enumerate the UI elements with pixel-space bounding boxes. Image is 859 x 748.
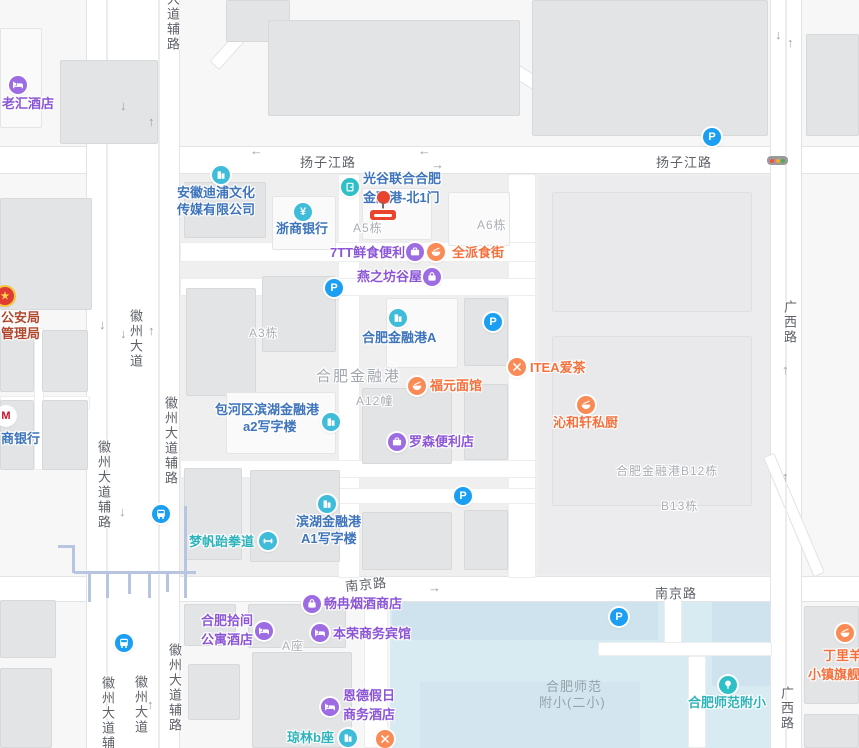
building bbox=[186, 288, 256, 396]
map-canvas[interactable]: 扬子江路 扬子江路 南京路 南京路 大道辅路 徽州大道 徽州大道辅路 徽州大道辅… bbox=[0, 0, 859, 748]
district-label-jinrong-gang: 合肥金融港 bbox=[316, 365, 401, 386]
star-glyph: ★ bbox=[1, 291, 10, 302]
office-building-icon[interactable] bbox=[318, 495, 336, 513]
restaurant-bowl-icon[interactable] bbox=[836, 624, 854, 642]
transit-line bbox=[106, 574, 109, 598]
m-glyph: M bbox=[1, 410, 10, 422]
arrow-up-icon: ↑ bbox=[148, 324, 155, 337]
poi-label-zheshang-bank[interactable]: 浙商银行 bbox=[276, 222, 328, 237]
restaurant-utensils-icon[interactable] bbox=[508, 358, 526, 376]
arrow-up-icon: ↑ bbox=[782, 470, 789, 483]
poi-label-dingliyang-line2[interactable]: 小镇旗舰 bbox=[808, 668, 859, 683]
poi-label-dingliyang-line1[interactable]: 丁里羊 bbox=[823, 649, 859, 664]
lane-divider bbox=[158, 0, 160, 748]
building-label-a12: A12幢 bbox=[356, 392, 393, 409]
poi-label-police-line1[interactable]: 公安局 bbox=[1, 311, 40, 326]
school-path bbox=[598, 642, 772, 656]
building bbox=[60, 60, 158, 144]
hotel-icon[interactable] bbox=[311, 624, 329, 642]
transit-line bbox=[72, 545, 75, 573]
building bbox=[804, 714, 859, 748]
transit-line bbox=[58, 545, 74, 548]
building bbox=[464, 510, 508, 570]
p-glyph: P bbox=[708, 131, 715, 143]
poi-label-ende-line2[interactable]: 商务酒店 bbox=[343, 708, 395, 723]
road-label-nanjing: 南京路 bbox=[655, 583, 697, 602]
arrow-left-icon: ← bbox=[418, 144, 431, 157]
transit-line bbox=[128, 574, 131, 594]
building bbox=[362, 512, 452, 570]
building bbox=[806, 34, 859, 136]
poi-label-guanggu-gate-line2[interactable]: 金融港-北1门 bbox=[363, 191, 440, 206]
road-label-huizhou: 徽州大道 bbox=[131, 675, 150, 735]
office-building-icon[interactable] bbox=[389, 309, 407, 327]
yuan-glyph: ¥ bbox=[300, 206, 306, 218]
building bbox=[0, 668, 52, 748]
shop-bag-icon[interactable] bbox=[423, 268, 441, 286]
arrow-right-icon: → bbox=[428, 581, 441, 594]
p-glyph: P bbox=[489, 316, 496, 328]
building-label-b13: B13栋 bbox=[661, 497, 698, 514]
food-street-icon[interactable] bbox=[427, 243, 445, 261]
building-label-a3: A3栋 bbox=[249, 324, 279, 341]
road-label-guangxi: 广西路 bbox=[780, 300, 799, 345]
bus-stop-icon[interactable] bbox=[152, 505, 170, 523]
poi-label-police-line2[interactable]: 管理局 bbox=[1, 327, 40, 342]
private-kitchen-icon[interactable] bbox=[577, 396, 595, 414]
noodle-restaurant-icon[interactable] bbox=[408, 377, 426, 395]
office-building-icon[interactable] bbox=[339, 729, 357, 747]
transit-line bbox=[166, 574, 169, 592]
poi-label-yanzhifang[interactable]: 燕之坊谷屋 bbox=[357, 270, 422, 285]
poi-label-hefeishijian-line1[interactable]: 合肥拾间 bbox=[201, 614, 253, 629]
arrow-down-icon: ↓ bbox=[120, 99, 127, 112]
building bbox=[42, 330, 88, 392]
poi-label-benrong[interactable]: 本荣商务宾馆 bbox=[333, 627, 411, 642]
arrow-down-icon: ↓ bbox=[99, 318, 106, 331]
poi-label-lawson[interactable]: 罗森便利店 bbox=[409, 435, 474, 450]
building bbox=[268, 20, 520, 116]
poi-label-jinronggang-a[interactable]: 合肥金融港A bbox=[362, 331, 436, 346]
poi-label-baohequ-line2[interactable]: a2写字楼 bbox=[243, 420, 296, 435]
poi-label-binhu-a1-line2[interactable]: A1写字楼 bbox=[301, 532, 357, 547]
bank-yuan-icon[interactable]: ¥ bbox=[294, 203, 312, 221]
p-glyph: P bbox=[330, 282, 337, 294]
hotel-icon[interactable] bbox=[9, 76, 27, 94]
campus-road bbox=[508, 174, 536, 578]
building-label-b12: 合肥金融港B12栋 bbox=[616, 462, 718, 479]
poi-label-anhui-dipu-line1[interactable]: 安徽迪浦文化 bbox=[177, 186, 255, 201]
poi-label-ende-line1[interactable]: 恩德假日 bbox=[343, 689, 395, 704]
poi-label-itea[interactable]: ITEA爱茶 bbox=[530, 361, 586, 376]
arrow-up-icon: ↑ bbox=[782, 363, 789, 376]
school-label-line2: 附小(二小) bbox=[539, 692, 606, 711]
building bbox=[552, 192, 752, 312]
road-label-yangzijiang: 扬子江路 bbox=[300, 152, 356, 171]
arrow-right-icon: → bbox=[431, 158, 444, 171]
building bbox=[464, 298, 508, 366]
road-label-fu-road: 大道辅路 bbox=[163, 0, 182, 52]
convenience-store-icon[interactable] bbox=[406, 243, 424, 261]
road-label-huizhou-fu: 徽州大道辅路 bbox=[161, 396, 180, 486]
restaurant-utensils-icon[interactable] bbox=[376, 730, 394, 748]
marker-gate-slot bbox=[374, 214, 392, 217]
poi-label-baohequ-line1[interactable]: 包河区滨湖金融港 bbox=[215, 403, 319, 418]
poi-label-fuyuan[interactable]: 福元面馆 bbox=[430, 379, 482, 394]
poi-label-guanggu-gate-line1[interactable]: 光谷联合合肥 bbox=[363, 172, 441, 187]
office-building-icon[interactable] bbox=[322, 413, 340, 431]
transit-line bbox=[184, 506, 187, 598]
poi-label-mengfan[interactable]: 梦帆跆拳道 bbox=[189, 535, 254, 550]
tobacco-shop-icon[interactable] bbox=[303, 595, 321, 613]
school-building bbox=[420, 682, 640, 748]
building-label-azuo: A座 bbox=[282, 637, 304, 654]
poi-label-quanpai[interactable]: 全派食街 bbox=[452, 246, 504, 261]
road-label-huizhou-fu: 徽州大道辅路 bbox=[98, 676, 117, 748]
taekwondo-gym-icon[interactable] bbox=[259, 532, 277, 550]
arrow-down-icon: ↓ bbox=[119, 505, 126, 518]
transit-line bbox=[88, 574, 91, 602]
building bbox=[0, 600, 56, 658]
traffic-light-icon bbox=[766, 155, 789, 166]
poi-label-7tt[interactable]: 7TT鲜食便利 bbox=[330, 246, 405, 261]
hotel-icon[interactable] bbox=[255, 622, 273, 640]
hotel-icon[interactable] bbox=[321, 698, 339, 716]
building bbox=[188, 664, 240, 720]
road-label-guangxi: 广西路 bbox=[777, 686, 796, 731]
convenience-store-icon[interactable] bbox=[388, 433, 406, 451]
school-path bbox=[664, 598, 682, 644]
campus-road bbox=[338, 488, 536, 504]
building-label-a5: A5栋 bbox=[353, 219, 383, 236]
road-label-huizhou: 徽州大道 bbox=[126, 309, 145, 369]
poi-label-anhui-dipu-line2[interactable]: 传媒有限公司 bbox=[177, 203, 255, 218]
building-label-a6: A6栋 bbox=[477, 216, 507, 233]
arrow-up-icon: ↑ bbox=[787, 36, 794, 49]
p-glyph: P bbox=[615, 611, 622, 623]
transit-line bbox=[74, 571, 196, 574]
poi-label-hefeishijian-line2[interactable]: 公寓酒店 bbox=[201, 633, 253, 648]
building bbox=[42, 400, 88, 470]
bus-stop-icon[interactable] bbox=[115, 634, 133, 652]
gate-entrance-icon[interactable] bbox=[341, 178, 359, 196]
road-label-huizhou-fu: 徽州大道辅路 bbox=[94, 440, 113, 530]
poi-label-qionglin[interactable]: 琼林b座 bbox=[287, 731, 334, 746]
road-label-yangzijiang: 扬子江路 bbox=[656, 152, 712, 171]
parking-icon[interactable]: P bbox=[703, 128, 721, 146]
poi-label-qinhexuan[interactable]: 沁和轩私厨 bbox=[553, 416, 618, 431]
parking-icon[interactable]: P bbox=[610, 608, 628, 626]
poi-label-laohui-hotel[interactable]: 老汇酒店 bbox=[2, 97, 54, 112]
transit-line bbox=[148, 574, 151, 598]
parking-icon[interactable]: P bbox=[484, 313, 502, 331]
building bbox=[532, 0, 768, 136]
arrow-up-icon: ↑ bbox=[148, 115, 155, 128]
arrow-down-icon: ↓ bbox=[775, 28, 782, 41]
school-tree-icon[interactable] bbox=[719, 676, 737, 694]
poi-label-binhu-a1-line1[interactable]: 滨湖金融港 bbox=[296, 515, 361, 530]
poi-label-changran[interactable]: 畅冉烟酒商店 bbox=[324, 597, 402, 612]
road-label-huizhou-fu: 徽州大道辅路 bbox=[165, 643, 184, 733]
poi-label-shifan-fuxiao[interactable]: 合肥师范附小 bbox=[688, 696, 766, 711]
company-building-icon[interactable] bbox=[212, 166, 230, 184]
poi-label-cmb-bank[interactable]: 商银行 bbox=[1, 432, 40, 447]
parking-icon[interactable]: P bbox=[454, 487, 472, 505]
side-street bbox=[364, 600, 388, 748]
parking-icon[interactable]: P bbox=[325, 279, 343, 297]
p-glyph: P bbox=[459, 490, 466, 502]
arrow-left-icon: ← bbox=[250, 144, 263, 157]
